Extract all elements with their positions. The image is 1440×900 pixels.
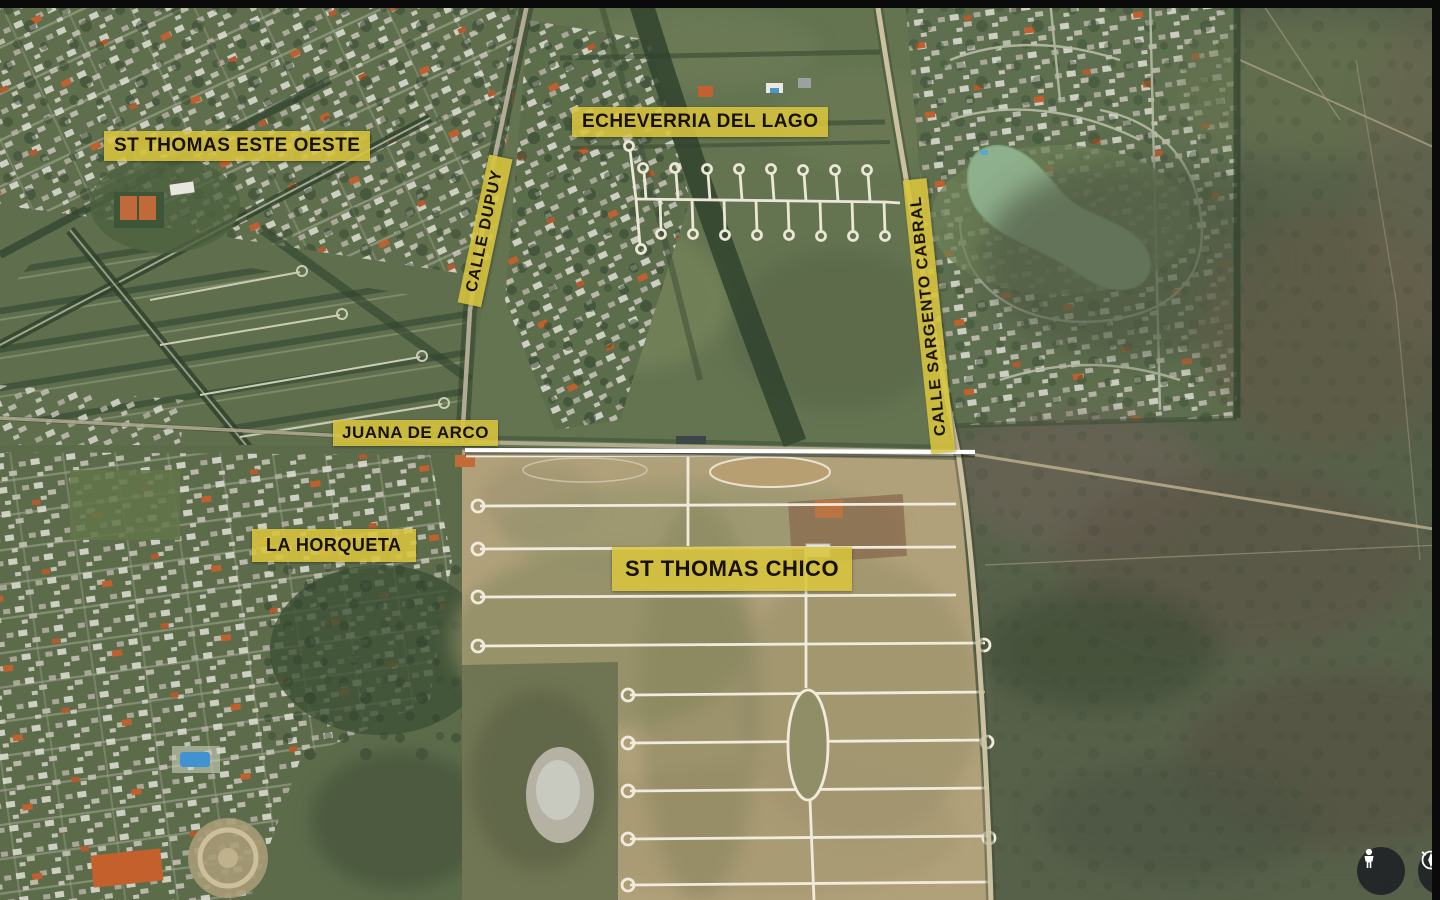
label-la-horqueta: LA HORQUETA	[252, 529, 416, 562]
pegman-button[interactable]	[1357, 847, 1405, 895]
letterbox-bar-right	[1432, 0, 1440, 900]
satellite-map[interactable]: ST THOMAS ESTE OESTE ECHEVERRIA DEL LAGO…	[0, 0, 1440, 900]
label-juana-de-arco: JUANA DE ARCO	[333, 420, 498, 446]
label-echeverria-del-lago: ECHEVERRIA DEL LAGO	[572, 107, 828, 137]
label-st-thomas-este-oeste: ST THOMAS ESTE OESTE	[104, 131, 370, 161]
letterbox-bar-top	[0, 0, 1440, 8]
juana-de-arco-highlight-line	[465, 450, 975, 452]
pegman-icon	[1357, 847, 1381, 871]
label-st-thomas-chico: ST THOMAS CHICO	[612, 547, 852, 591]
